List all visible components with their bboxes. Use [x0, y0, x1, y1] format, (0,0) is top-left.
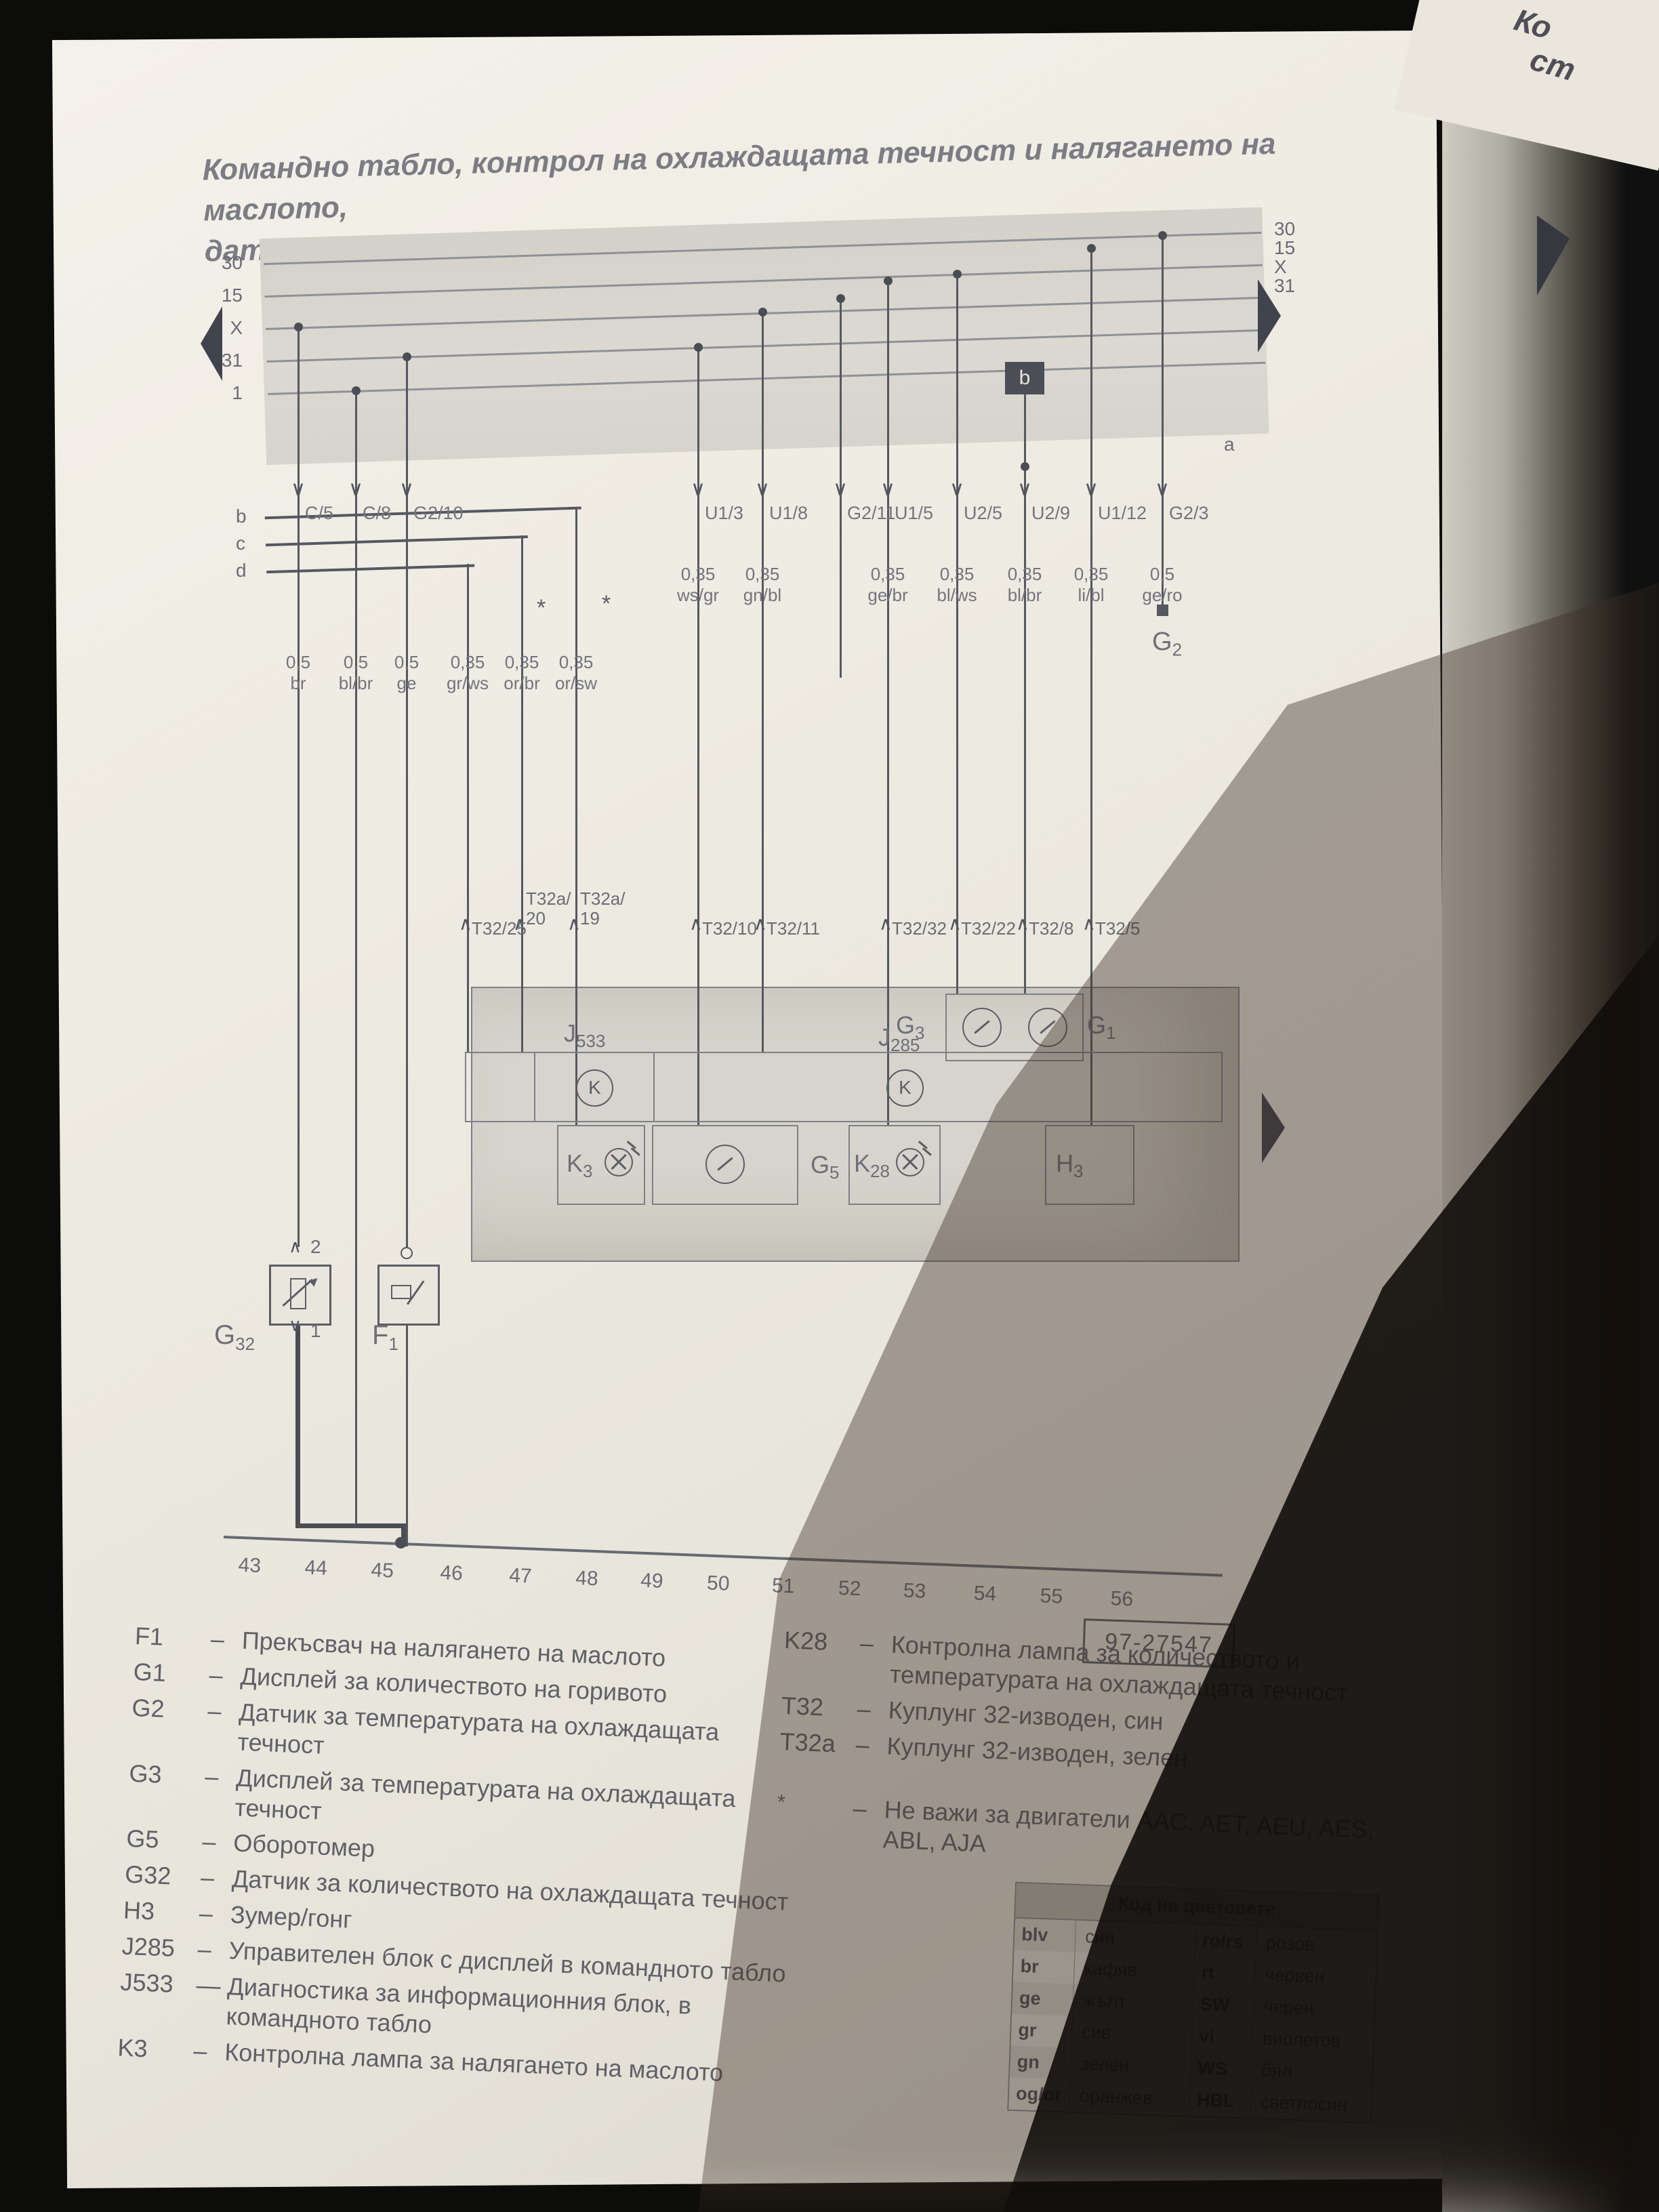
wire-label: 0,35ws/gr [677, 564, 719, 606]
color-code: blv [1015, 1919, 1077, 1952]
connector-label: C/5 [305, 503, 333, 524]
legend-dash: – [210, 1624, 243, 1656]
g32-label: G32 [214, 1320, 255, 1355]
wire-vertical [355, 390, 357, 1526]
track-number: 46 [440, 1561, 464, 1585]
junction-dot [836, 294, 845, 303]
t32-terminal-label: T32/25 [472, 919, 527, 939]
photographed-manual-page: Ко ст Командно табло, контрол на охлажда… [0, 0, 1659, 2212]
color-code: gn [1010, 2046, 1072, 2080]
wire-label: 0,35or/sw [555, 652, 597, 694]
t32-arrow-icon: ∧ [689, 914, 703, 935]
wire-label: 0,35or/br [504, 652, 539, 694]
connector-hook-icon: ∨ [1017, 477, 1032, 501]
legend-dash: – [858, 1629, 892, 1689]
legend-dash: – [199, 1899, 231, 1930]
legend-code: K28 [782, 1625, 861, 1687]
track-number: 49 [640, 1570, 664, 1593]
wire-size: 0,5 [286, 652, 310, 673]
wire-label: 0,5bl/br [339, 652, 373, 694]
note-text: Не важи за двигатели AAC, AET, AEU, AES,… [882, 1795, 1387, 1875]
note-dash: – [851, 1793, 885, 1854]
color-name: кафяв [1074, 1952, 1195, 1988]
wire-vertical [887, 281, 889, 1125]
g32-terminal2: 2 [310, 1236, 321, 1258]
connector-hook-icon: ∨ [1155, 477, 1170, 501]
connector-label: U2/9 [1031, 503, 1070, 524]
wire-vertical [956, 274, 958, 994]
t32-arrow-icon: ∧ [879, 914, 893, 935]
legend-dash: – [857, 1694, 889, 1725]
wire-size: 0,35 [1074, 564, 1109, 585]
junction-dot [884, 276, 893, 285]
color-code: vi [1191, 2020, 1254, 2054]
wire-label: 0,5br [286, 652, 310, 694]
wire-label: 0,5ge [394, 652, 419, 694]
wire-label: 0,35gr/ws [447, 652, 489, 694]
connector-hook-icon: ∨ [291, 477, 306, 501]
wire-color: bl/br [339, 673, 373, 694]
legend-dash: – [200, 1863, 232, 1894]
terminal-label-left: 30 [211, 252, 243, 274]
b-reference-box: b [1005, 362, 1044, 394]
legend-dash: – [855, 1729, 888, 1761]
color-name: светлосин [1250, 2086, 1372, 2122]
junction-dot [953, 270, 962, 279]
wire-size: 0,5 [339, 652, 373, 673]
t32-terminal-label: T32/5 [1095, 919, 1141, 939]
g1-label: G1 [1087, 1011, 1115, 1044]
legend-code: K3 [117, 2032, 194, 2066]
t32-terminal-label: T32/8 [1029, 919, 1074, 939]
connector-label: U1/8 [769, 503, 808, 524]
connector-label: U2/5 [964, 503, 1002, 524]
color-name: син [1075, 1921, 1196, 1957]
legend-right-column: K28–Контролна лампа за количеството и те… [775, 1625, 1394, 1881]
j285-label: J285 [878, 1023, 920, 1056]
wire-label: 0,35li/bl [1074, 564, 1109, 606]
connector-hook-icon: ∨ [833, 477, 848, 501]
track-number: 45 [371, 1559, 394, 1582]
row-label: b [236, 506, 247, 527]
t32-arrow-icon: ∧ [1082, 914, 1096, 935]
wire-color: ge/br [867, 585, 907, 606]
legend-dash: — [194, 1970, 228, 2031]
wire-vertical [762, 312, 764, 1052]
row-label: c [236, 533, 245, 554]
connector-label: G2/11 [847, 503, 896, 524]
terminal-label-left: 15 [211, 285, 243, 306]
junction-dot [352, 386, 361, 395]
legend-code: G5 [126, 1824, 203, 1857]
g2-label: G2 [1152, 628, 1182, 661]
wire-vertical [697, 347, 699, 1125]
color-name: розов [1256, 1927, 1377, 1963]
legend-code: G32 [124, 1860, 201, 1893]
color-name: зелен [1071, 2048, 1192, 2084]
connector-hook-icon: ∨ [880, 477, 895, 501]
wire-color: bl/ws [937, 585, 977, 606]
junction-dot [1158, 231, 1167, 240]
g32-terminal2-arrow-icon: ∧ [289, 1236, 302, 1257]
row-label: d [236, 560, 247, 581]
j533-label: J533 [564, 1019, 605, 1052]
legend-code: G3 [127, 1758, 206, 1820]
track-number: 50 [706, 1572, 730, 1595]
t32-arrow-icon: ∧ [459, 914, 472, 935]
wire-vertical [298, 327, 300, 1247]
connector-label: G2/10 [413, 503, 464, 524]
legend-dash: – [209, 1660, 241, 1692]
color-name: виолетов [1252, 2022, 1374, 2058]
track-number: 52 [838, 1577, 861, 1601]
h3-label: H3 [1056, 1149, 1083, 1182]
note-symbol: * [775, 1790, 854, 1852]
t32-terminal-label: T32/11 [766, 919, 820, 939]
wire-color: or/br [504, 673, 539, 694]
track-number: 51 [771, 1574, 795, 1598]
color-code: SW [1193, 1988, 1255, 2022]
wire-vertical [521, 535, 523, 1052]
connector-hook-icon: ∨ [755, 477, 770, 501]
wire-label: 0,35bl/br [1008, 564, 1042, 606]
wire-color: bl/br [1008, 585, 1042, 606]
legend-dash: – [197, 1934, 230, 1965]
t32-line2: 20 [526, 909, 571, 928]
legend-code: J533 [119, 1967, 197, 2030]
terminal-label-left: X [211, 317, 243, 339]
k28-lamp-icon [896, 1148, 924, 1176]
color-code: WS [1191, 2052, 1253, 2086]
junction-dot [694, 343, 703, 352]
junction-dot [395, 1537, 407, 1549]
wire-vertical [467, 564, 469, 1052]
t32-line1: T32a/ [580, 889, 626, 909]
junction-dot [294, 323, 303, 331]
connector-hook-icon: ∨ [348, 477, 363, 501]
wire-label: 0,35ge/br [867, 564, 907, 606]
f1-label: F1 [372, 1320, 398, 1355]
wire-size: 0,35 [677, 564, 719, 585]
wire-label: 0,35gn/bl [743, 564, 781, 606]
color-code: og/or [1008, 2078, 1071, 2112]
connector-label: U1/5 [895, 503, 933, 524]
color-name: бял [1252, 2054, 1373, 2090]
wire-size: 0,35 [504, 652, 539, 673]
wire-color: li/bl [1074, 585, 1109, 606]
legend-dash: – [202, 1827, 234, 1858]
tachometer-gauge-icon [705, 1145, 745, 1184]
junction-dot [1021, 462, 1029, 471]
connector-label: G2/3 [1169, 503, 1209, 524]
f1-wire [406, 1320, 408, 1547]
legend-code: T32a [779, 1727, 857, 1760]
color-name: червен [1255, 1959, 1376, 1994]
wire-vertical [1090, 248, 1092, 1125]
connector-label: U1/3 [705, 503, 743, 524]
legend-dash: – [193, 2036, 226, 2067]
k3-lamp-icon [605, 1148, 633, 1176]
track-number: 48 [575, 1567, 599, 1591]
legend-code: T32 [781, 1691, 858, 1724]
color-code: HBL [1189, 2084, 1252, 2118]
g5-label: G5 [811, 1151, 839, 1183]
f1-terminal-icon [401, 1247, 413, 1259]
connector-label: C/8 [363, 503, 391, 524]
wire-vertical [1024, 381, 1026, 994]
wire-color: gr/ws [447, 673, 489, 694]
connector-hook-icon: ∨ [399, 477, 414, 501]
legend-dash: – [203, 1761, 237, 1822]
t32-arrow-icon: ∧ [1016, 914, 1029, 935]
connector-hook-icon: ∨ [1084, 477, 1099, 501]
wire-size: 0,35 [867, 564, 907, 585]
wire-size: 0,35 [1008, 564, 1042, 585]
wire-size: 0,5 [394, 652, 419, 673]
connector-hook-icon: ∨ [691, 477, 705, 501]
wire-size: 0,35 [937, 564, 977, 585]
t32-terminal-label: T32/32 [892, 919, 947, 939]
connector-label: U1/12 [1098, 503, 1147, 524]
k28-label: K28 [854, 1149, 890, 1182]
wire-size: 0,5 [1142, 564, 1182, 585]
color-code-table: Код на цветовете blvсинro/rsрозовbrкафяв… [1007, 1882, 1379, 2124]
track-number: 54 [973, 1582, 997, 1606]
g32-sensor-symbol-icon [290, 1278, 306, 1309]
track-number: 56 [1110, 1587, 1134, 1611]
t32-terminal-label: T32a/19 [580, 889, 626, 928]
legend-code: G2 [130, 1693, 209, 1755]
wire-color: gn/bl [743, 585, 781, 606]
track-number: 43 [238, 1554, 262, 1578]
t32-line2: 19 [580, 909, 626, 928]
t32-terminal-label: T32a/20 [526, 889, 571, 928]
legend-code: H3 [123, 1896, 200, 1929]
a-marker: a [1224, 434, 1235, 455]
t32-terminal-label: T32/10 [702, 919, 757, 939]
color-code: ro/rs [1195, 1925, 1257, 1959]
bottom-wire-heavy [295, 1523, 406, 1528]
color-code: br [1013, 1950, 1076, 1984]
color-name: черен [1254, 1990, 1375, 2026]
terminal-label-right: 31 [1274, 275, 1315, 297]
t32-arrow-icon: ∧ [948, 914, 962, 935]
footnote-star: * [537, 595, 546, 621]
t32-terminal-label: T32/22 [961, 919, 1016, 939]
color-name: оранжев [1069, 2080, 1191, 2116]
coolant-gauge-icon [962, 1008, 1002, 1047]
junction-dot [758, 308, 767, 316]
color-name: сив [1072, 2016, 1193, 2052]
terminal-label-left: 31 [211, 350, 243, 371]
color-code: rt [1194, 1957, 1256, 1990]
legend-code: J285 [121, 1931, 199, 1965]
connector-hook-icon: ∨ [949, 477, 964, 501]
wire-color: or/sw [555, 673, 597, 694]
wire-size: 0,35 [447, 652, 489, 673]
legend-code: F1 [134, 1621, 211, 1654]
g32-terminal1-arrow-icon: ∨ [289, 1315, 302, 1336]
wire-label: 0,35bl/ws [937, 564, 977, 606]
track-number: 55 [1040, 1584, 1063, 1608]
wire-color: ge [394, 673, 419, 694]
color-code: gr [1011, 2014, 1073, 2048]
fuel-gauge-icon [1028, 1008, 1067, 1047]
track-number: 53 [903, 1580, 926, 1603]
continuation-arrow-right2-icon [1262, 1092, 1285, 1163]
track-number: 44 [304, 1557, 328, 1580]
g2-connector-square [1157, 605, 1168, 616]
wire-size: 0,35 [555, 652, 597, 673]
j285-k-symbol-icon: K [886, 1069, 924, 1107]
wire-color: br [286, 673, 310, 694]
g32-wire-heavy [295, 1320, 300, 1526]
wire-vertical [1162, 235, 1164, 605]
legend-dash: – [206, 1696, 240, 1757]
color-code: ge [1012, 1982, 1074, 2016]
color-name: жълт [1073, 1984, 1194, 2020]
wire-color: ge/ro [1142, 585, 1182, 606]
t32-line1: T32a/ [526, 889, 571, 909]
junction-dot [1087, 244, 1096, 253]
wire-label: 0,5ge/ro [1142, 564, 1182, 606]
k3-label: K3 [567, 1149, 592, 1182]
wire-size: 0,35 [743, 564, 781, 585]
wire-color: ws/gr [677, 585, 719, 606]
g32-terminal1: 1 [310, 1320, 321, 1342]
track-number: 47 [509, 1564, 533, 1588]
junction-dot [403, 352, 411, 361]
legend-code: G1 [133, 1657, 210, 1690]
footnote-star: * [602, 591, 611, 617]
j533-k-symbol-icon: K [576, 1069, 613, 1107]
terminal-label-left: 1 [211, 382, 243, 404]
legend-left-column: F1–Прекъсвач на налягането на маслотоG1–… [117, 1621, 802, 2096]
f1-switch-symbol-icon [391, 1285, 411, 1299]
